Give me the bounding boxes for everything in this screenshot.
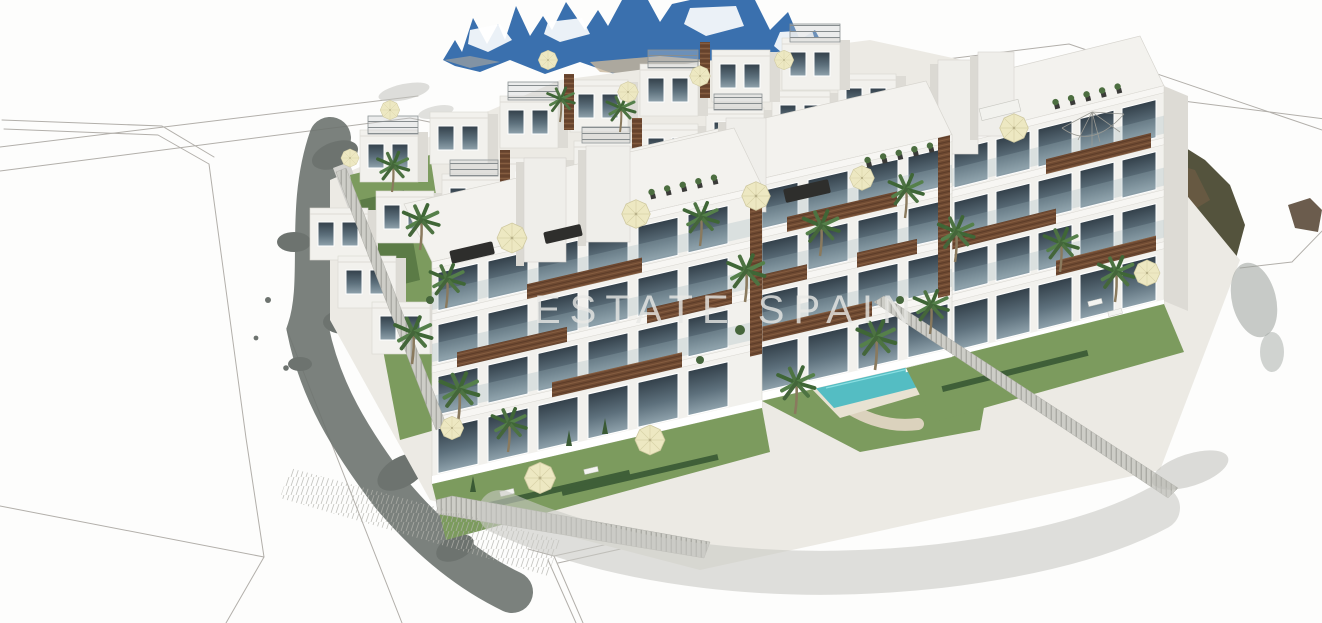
- right-side-face: [1164, 86, 1188, 311]
- road-line-topleft-upper: [0, 96, 418, 147]
- rock-patch-edge: [1288, 198, 1322, 232]
- splash-wisp: [377, 79, 431, 105]
- architectural-render: ESTATE SPAIN: [0, 0, 1322, 623]
- left-lot-top-inner: [2, 120, 214, 157]
- left-lot-bottom-edge: [0, 506, 264, 557]
- stair-core: [524, 158, 566, 262]
- bottom-lot-left-edge: [548, 556, 583, 623]
- stair-core: [586, 146, 630, 242]
- road-line-topright-lower: [1175, 100, 1322, 119]
- render-scene: [0, 0, 1322, 623]
- left-lot-outline: [4, 129, 264, 623]
- road-line-right: [1240, 228, 1322, 268]
